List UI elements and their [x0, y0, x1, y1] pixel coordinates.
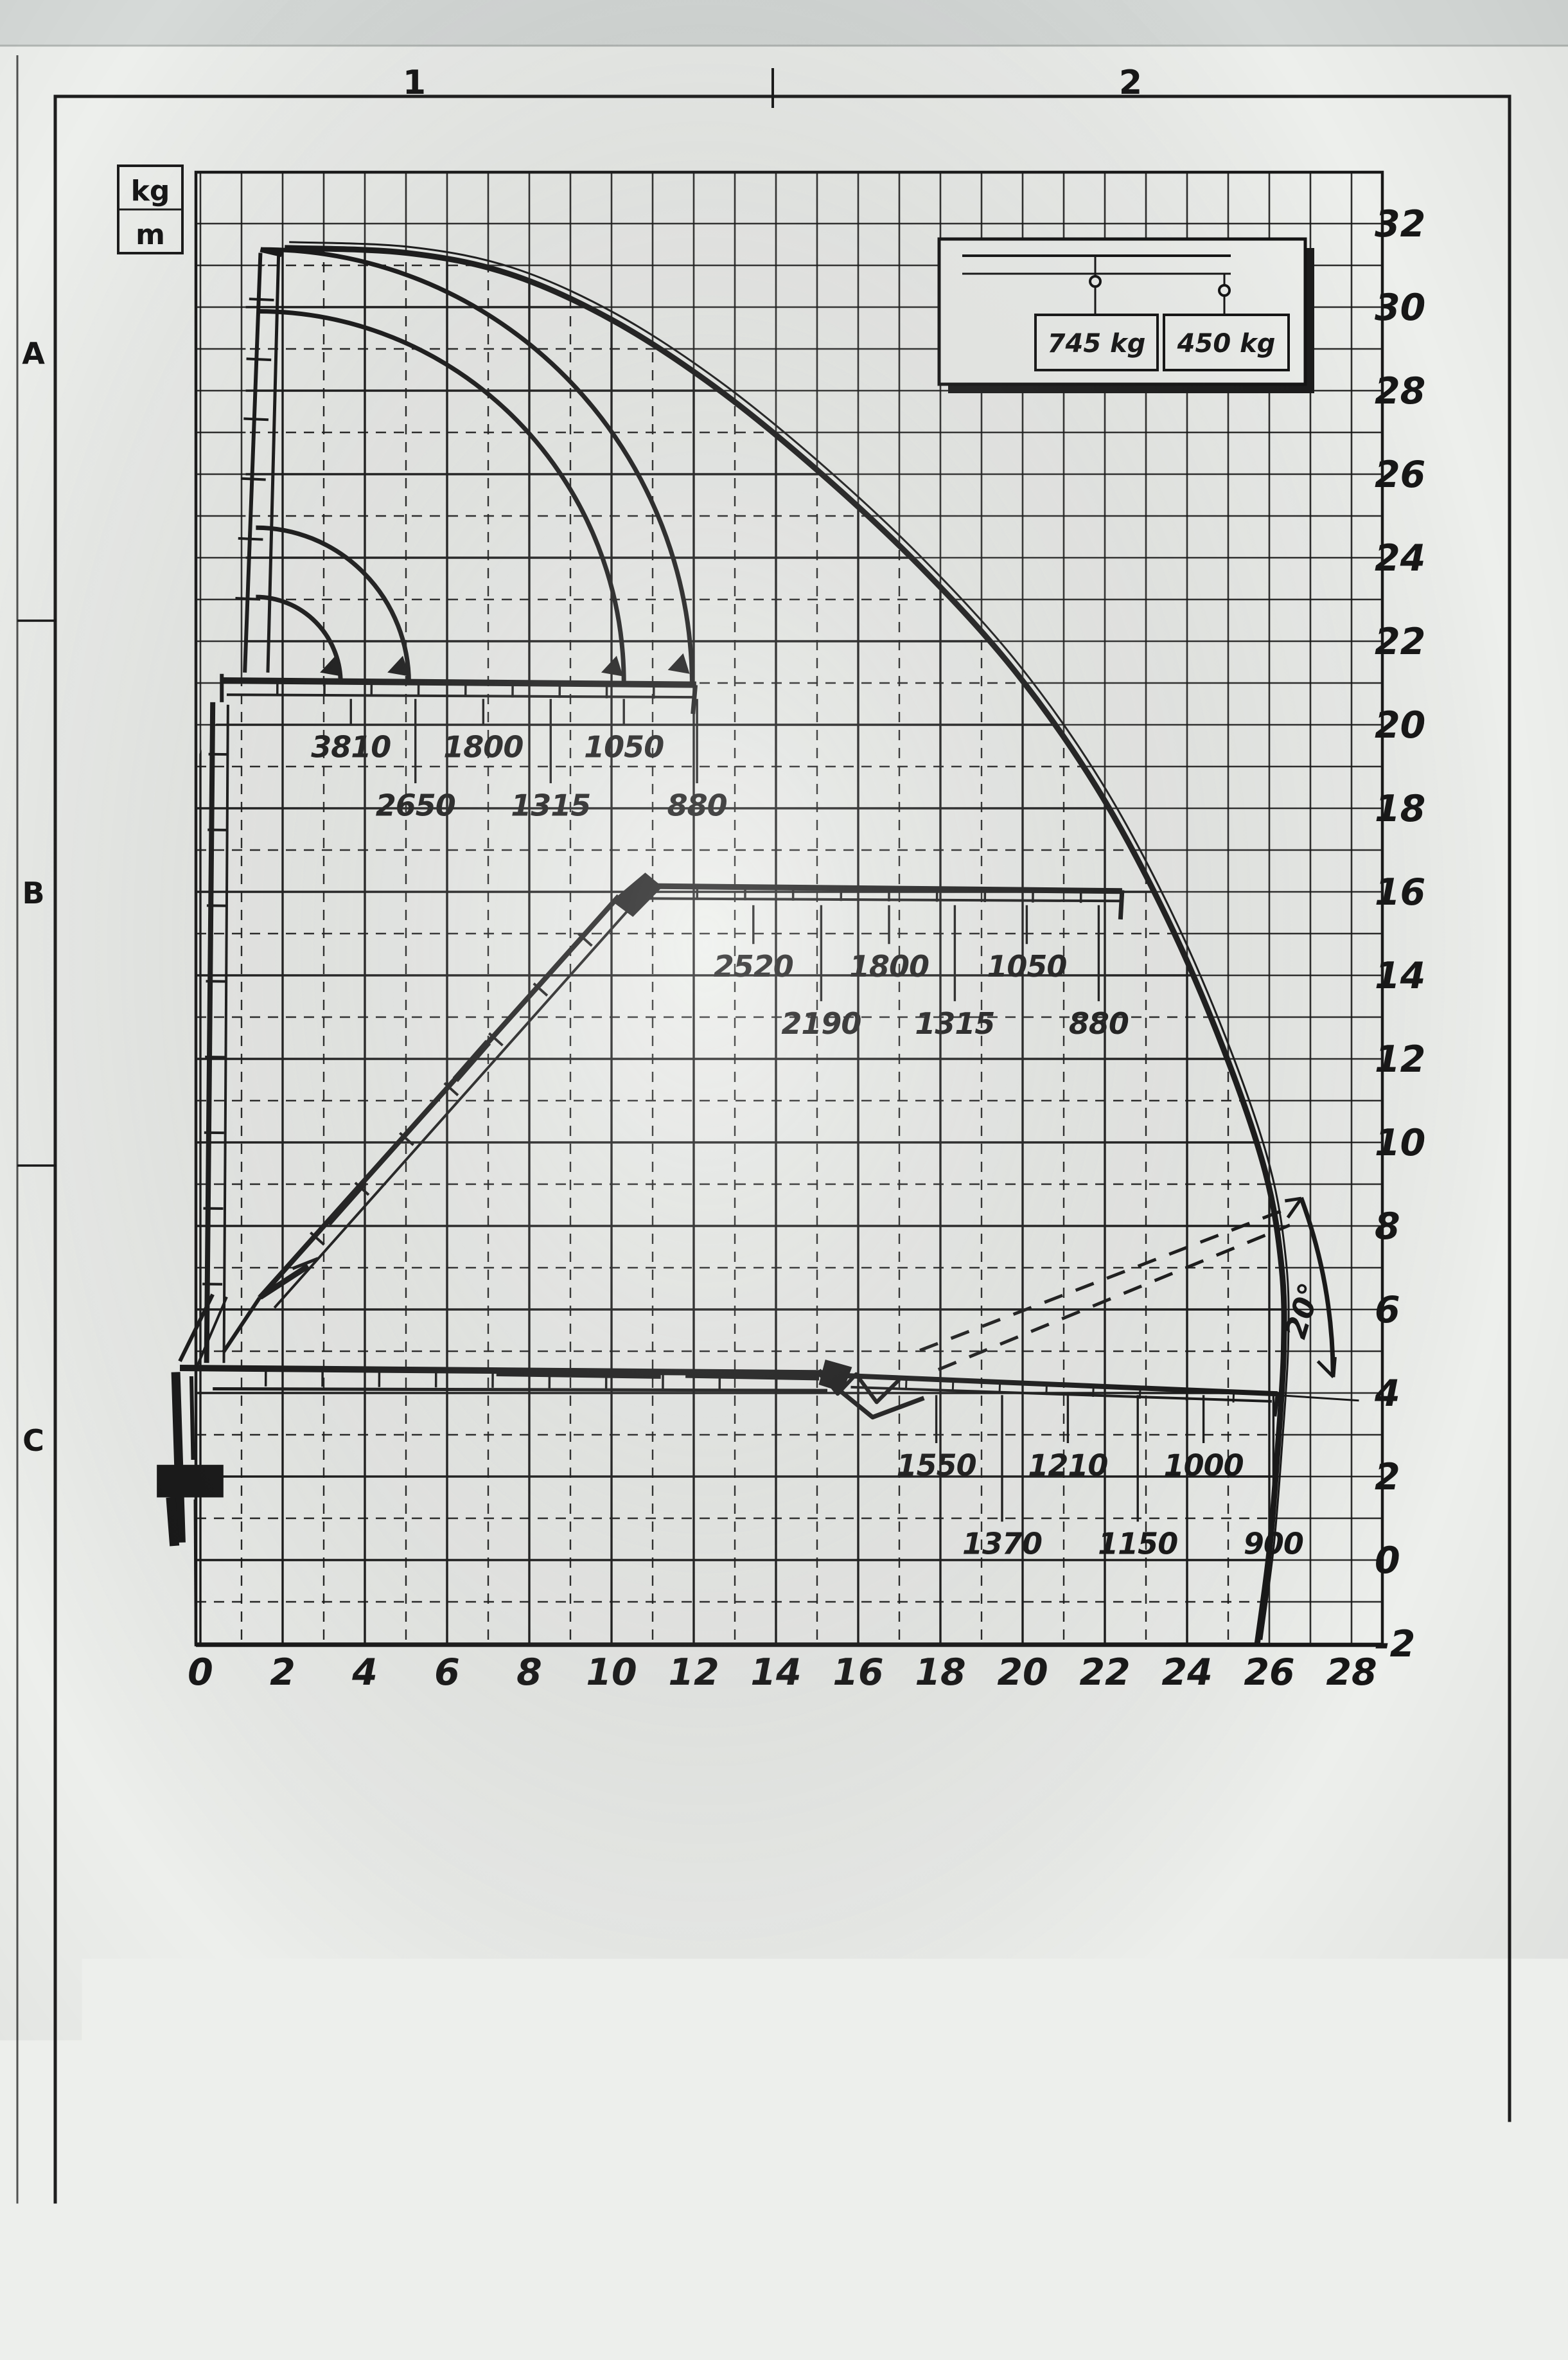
load-value-label: 1370	[962, 1527, 1042, 1561]
boom-a-vertical-rung	[238, 538, 263, 540]
y-axis-tick-label: 22	[1375, 621, 1425, 663]
date-label: 20/06/2012	[1142, 2247, 1502, 2301]
y-axis-tick-label: 18	[1375, 788, 1425, 830]
boom-c-jib-rung	[953, 1379, 953, 1391]
jib-hook-capacity: 450 kg	[1177, 329, 1276, 359]
x-axis-tick-label: 0	[188, 1651, 213, 1694]
boom-c-main-stroke	[497, 1372, 661, 1375]
load-value-label: 1000	[1164, 1448, 1244, 1483]
load-value-label: 1800	[443, 730, 523, 765]
side-ruler-section-label: A	[22, 336, 45, 371]
paper-sheet	[0, 45, 1568, 2360]
side-ruler-section-label: B	[22, 876, 44, 910]
boom-a-vertical-rung	[243, 419, 269, 420]
y-axis-tick-label: 14	[1375, 955, 1425, 997]
y-axis-tick-label: 4	[1374, 1372, 1400, 1415]
y-axis-tick-label: 30	[1375, 287, 1425, 329]
boom-a-vertical-rung	[241, 479, 266, 480]
crane-base-stroke	[171, 1498, 175, 1546]
load-value-label: 880	[1069, 1006, 1129, 1041]
model-title: ✱✱ 65026 SP PT +J1415.20 ✱✱ 189900	[442, 2172, 1503, 2230]
y-axis-tick-label: 12	[1375, 1038, 1425, 1081]
load-value-label: 3810	[311, 730, 391, 765]
y-axis-tick-label: 8	[1375, 1205, 1400, 1248]
load-value-label: 2190	[781, 1006, 861, 1041]
x-axis-tick-label: 20	[997, 1651, 1048, 1694]
scanned-crane-load-chart: ABC 12 kg m 3810265018001315105088025202…	[0, 0, 1568, 2360]
y-axis-tick-label: -2	[1375, 1623, 1415, 1665]
y-axis-tick-label: 26	[1375, 454, 1425, 496]
y-axis-tick-label: 24	[1375, 537, 1425, 580]
boom-a-vertical-rung	[247, 359, 272, 360]
unit-kg-label: kg	[131, 175, 170, 208]
unit-box: kg m	[118, 166, 182, 253]
crane-base-stroke	[191, 1376, 193, 1460]
y-axis-tick-label: 16	[1375, 871, 1425, 914]
unit-m-label: m	[136, 218, 165, 251]
y-axis-tick-label: 0	[1375, 1539, 1400, 1582]
top-ruler-mark: 1	[403, 64, 426, 102]
load-chart-canvas: ABC 12 kg m 3810265018001315105088025202…	[0, 0, 1568, 2360]
load-value-label: 2520	[714, 949, 793, 984]
x-axis-tick-label: 26	[1244, 1651, 1294, 1694]
boom-a-horizontal-stroke	[693, 685, 696, 714]
x-axis-tick-label: 28	[1326, 1651, 1377, 1694]
x-axis-tick-label: 12	[668, 1651, 719, 1694]
boom-c-main-stroke	[213, 1389, 827, 1391]
load-value-label: 1210	[1028, 1448, 1107, 1483]
load-value-label: 1315	[511, 788, 590, 823]
load-value-label: 1050	[987, 949, 1066, 984]
x-axis-tick-label: 24	[1161, 1651, 1212, 1694]
y-axis-tick-label: 2	[1375, 1456, 1400, 1498]
x-axis-tick-label: 4	[351, 1651, 378, 1694]
load-value-label: 1550	[897, 1448, 976, 1483]
boom-c-jib-rung	[906, 1377, 906, 1389]
x-axis-tick-label: 18	[915, 1651, 965, 1694]
load-value-label: 1050	[584, 730, 664, 765]
y-axis-tick-label: 20	[1375, 704, 1425, 747]
load-value-label: 1315	[915, 1006, 994, 1041]
crane-base-stroke	[195, 1500, 195, 1645]
y-axis-tick-label: 10	[1375, 1122, 1425, 1164]
boom-c-jib-rung	[1093, 1385, 1094, 1397]
side-ruler-section-label: C	[22, 1423, 44, 1458]
crane-base-solid	[157, 1465, 224, 1498]
boom-c-jib-rung	[1046, 1383, 1047, 1395]
y-axis-tick-label: 28	[1375, 370, 1425, 413]
hook-capacity-legend: 745 kg 450 kg	[939, 239, 1314, 393]
load-value-label: 900	[1244, 1527, 1303, 1561]
y-axis-tick-label: 32	[1375, 203, 1425, 245]
top-ruler-mark: 2	[1119, 64, 1142, 102]
load-value-label: 1150	[1098, 1527, 1177, 1561]
x-axis-tick-label: 2	[270, 1651, 295, 1694]
boom-c-jib-rung	[1140, 1387, 1140, 1399]
y-axis-tick-label: 6	[1375, 1289, 1400, 1331]
boom-a-vertical-rung	[249, 299, 274, 300]
load-value-label: 1800	[849, 949, 929, 984]
x-axis-tick-label: 6	[434, 1651, 460, 1694]
main-hook-capacity: 745 kg	[1048, 329, 1146, 359]
boom-c-main-stroke	[685, 1374, 819, 1376]
load-value-label: 2650	[376, 788, 455, 823]
x-axis-tick-label: 16	[832, 1651, 883, 1694]
boom-b-jib-stroke	[1120, 890, 1122, 919]
boom-c-jib-rung	[1186, 1388, 1187, 1400]
boom-c-jib-rung	[1000, 1381, 1000, 1393]
x-axis-tick-label: 22	[1079, 1651, 1130, 1694]
angle-arrowhead-icon	[1334, 1357, 1335, 1377]
boom-c-jib-rung	[1233, 1390, 1234, 1402]
load-value-label: 880	[667, 788, 727, 823]
x-axis-tick-label: 14	[750, 1651, 801, 1694]
x-axis-tick-label: 8	[516, 1651, 542, 1694]
x-axis-tick-label: 10	[586, 1651, 637, 1694]
